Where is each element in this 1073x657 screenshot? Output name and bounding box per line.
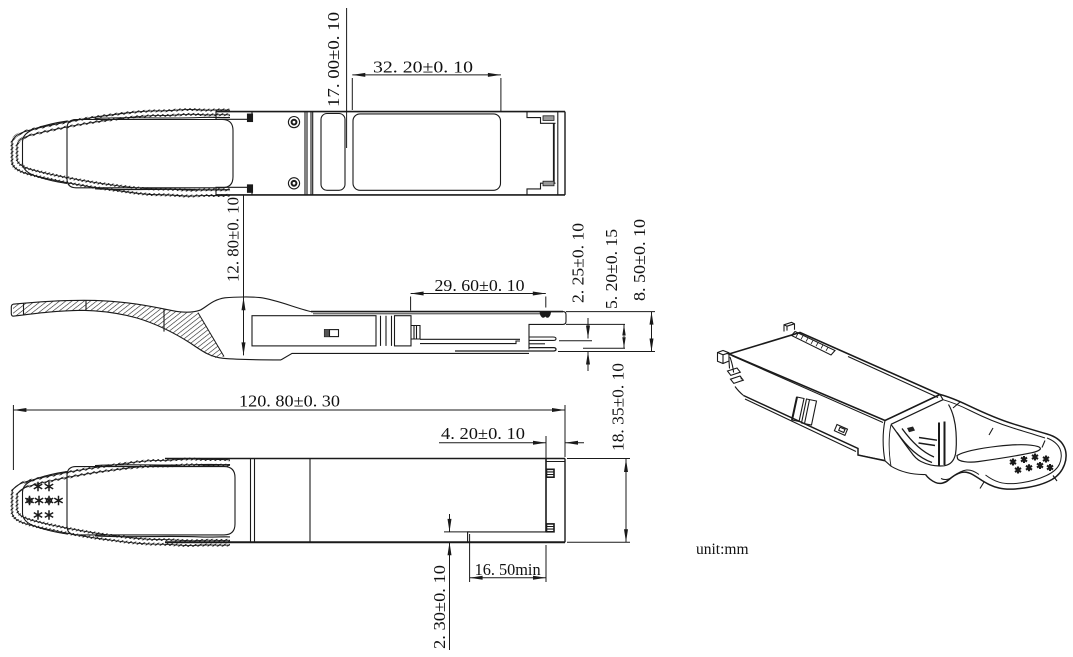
svg-text:2. 25±0. 10: 2. 25±0. 10 bbox=[569, 223, 588, 303]
svg-text:17. 00±0. 10: 17. 00±0. 10 bbox=[324, 12, 343, 107]
svg-text:5. 20±0. 15: 5. 20±0. 15 bbox=[602, 229, 621, 309]
svg-text:120. 80±0. 30: 120. 80±0. 30 bbox=[239, 392, 340, 411]
svg-text:12. 80±0. 10: 12. 80±0. 10 bbox=[224, 197, 243, 282]
svg-text:4. 20±0. 10: 4. 20±0. 10 bbox=[441, 424, 525, 443]
svg-text:16. 50min: 16. 50min bbox=[475, 560, 541, 579]
svg-text:32. 20±0. 10: 32. 20±0. 10 bbox=[373, 58, 473, 77]
svg-text:18. 35±0. 10: 18. 35±0. 10 bbox=[609, 363, 628, 451]
svg-text:8. 50±0. 10: 8. 50±0. 10 bbox=[630, 219, 649, 301]
svg-text:2. 30±0. 10: 2. 30±0. 10 bbox=[430, 565, 449, 649]
svg-text:29. 60±0. 10: 29. 60±0. 10 bbox=[435, 276, 525, 295]
svg-text:unit:mm: unit:mm bbox=[696, 541, 749, 558]
